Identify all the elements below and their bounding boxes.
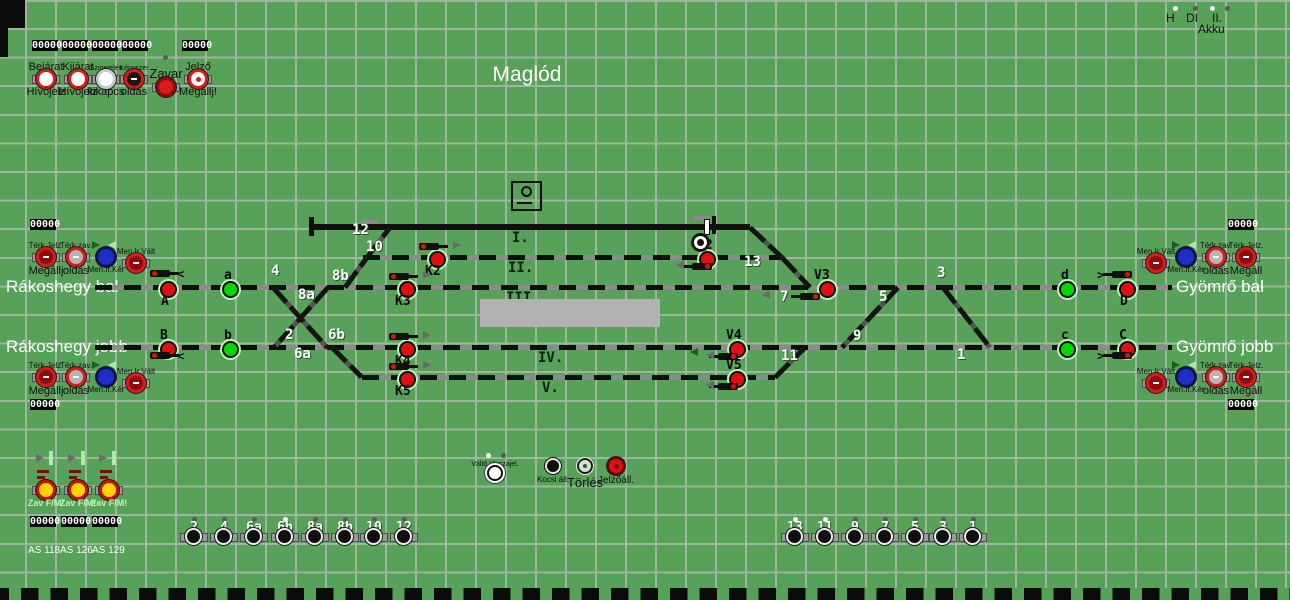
axle-counter-display: 00000 [182,40,208,51]
signal-d[interactable] [1059,281,1076,298]
track-I [312,224,750,230]
jelz-ll--button[interactable] [607,457,625,475]
signal-a[interactable] [222,281,239,298]
axle-counter-display: 00000 [92,516,118,527]
axle-counter-display: 00000 [32,40,58,51]
track-number-label: V. [542,380,559,396]
switch-button-4[interactable] [215,528,232,545]
switch-button-11[interactable] [816,528,833,545]
route-button-label: Jelzőáll. [588,475,644,486]
block-status-bar [49,451,53,465]
switch-button-5[interactable] [906,528,923,545]
switch-button-6a[interactable] [245,528,262,545]
direction-arrow-icon [423,331,431,339]
zav-fm-label: Zav F/M! [89,498,129,508]
block-status-bar [81,451,85,465]
t-rl-s-button[interactable] [577,458,593,474]
signal-label: C [1119,328,1127,343]
axle-counter-display: 00000 [30,399,56,410]
axle-counter-display: 00000 [1228,399,1254,410]
switch-button-13[interactable] [786,528,803,545]
block-fault-bar [37,470,49,473]
switch-number-label: 11 [781,348,798,364]
signal-mast-symbol [389,273,409,280]
signal-mast-symbol [150,270,170,277]
block-direction-arrow-icon [36,454,44,462]
signal-direction-glyph: < [177,267,184,281]
platform [480,299,660,327]
direction-arrow-icon [676,261,684,269]
block-fault-bar [37,476,45,479]
track-switch-leg [780,255,812,288]
old-s-button[interactable] [1206,247,1226,267]
signal-label: K3 [395,294,411,309]
switch-button-8b[interactable] [336,528,353,545]
track-switch-leg [330,345,364,379]
zav-fm-button[interactable] [36,480,56,500]
switch-number-label: 6a [294,346,311,362]
signal-mast-symbol [1112,352,1132,359]
signal-mast-symbol [419,243,439,250]
old-s-button[interactable] [1206,367,1226,387]
switch-button-1[interactable] [964,528,981,545]
switch-number-label: 12 [352,222,369,238]
axle-counter-display: 00000 [61,516,87,527]
station-title: Maglód [457,63,597,87]
track-switch-leg [840,285,900,348]
track-V [362,375,775,380]
block-direction-arrow-icon [99,454,107,462]
track-number-label: II. [508,260,533,276]
block-section-label: AS 126 [60,545,93,556]
signal-V3[interactable] [819,281,836,298]
track-end-marker [712,216,716,234]
kocsi-ll--button[interactable] [545,458,561,474]
signal-label: A [161,294,169,309]
signal-mast-symbol [1112,271,1132,278]
direction-right-arrow-icon [92,241,100,249]
meg-ll-button[interactable] [1236,247,1256,267]
switch-number-label: 3 [937,265,945,281]
old-s-button[interactable] [66,247,86,267]
direction-right-arrow-icon [1172,361,1180,369]
axle-counter-display: 00000 [62,40,88,51]
direction-arrow-icon [423,271,431,279]
switch-number-label: 9 [853,328,861,344]
signal-mast-symbol [389,363,409,370]
station-building-symbol [511,181,542,211]
switch-button-10[interactable] [365,528,382,545]
old-s-button[interactable] [66,367,86,387]
signal-c[interactable] [1059,341,1076,358]
direction-arrow-icon [706,351,714,359]
axle-counter-display: 00000 [92,40,118,51]
switch-number-label: 13 [744,254,761,270]
block-fault-bar [100,470,112,473]
switch-number-label: 7 [780,289,788,305]
track-number-label: IV. [538,350,563,366]
track-end-marker [309,217,314,236]
indicator-lamp [501,453,506,458]
signal-label: c [1061,328,1069,343]
button-bottom-label: Megállj! [174,86,222,98]
men-ir-k-r-button[interactable] [1176,367,1196,387]
switch-number-label: 6b [328,327,345,343]
switch-button-7[interactable] [876,528,893,545]
signal-label: V3 [814,268,830,283]
switch-number-label: 8a [298,287,315,303]
track-switch-leg [941,285,992,348]
switch-button-8a[interactable] [306,528,323,545]
signal-direction-glyph: > [1097,349,1104,363]
station-label-gyomro-bal: Gyömrő bal [1176,277,1264,297]
switch-number-label: 10 [366,239,383,255]
signal-mast-symbol [692,263,712,270]
signal-mast-symbol [150,352,170,359]
direction-right-arrow-icon [92,361,100,369]
signal-direction-glyph: < [177,349,184,363]
direction-arrow-icon [453,241,461,249]
block-direction-arrow-icon [68,454,76,462]
panel-corner-block [0,28,8,57]
v-lt-visszajel--button[interactable] [487,465,503,481]
power-source-label: DI [1186,11,1198,25]
switch-button-6b[interactable] [276,528,293,545]
button-bottom-label: Megáll [1218,385,1274,397]
track-end-marker [704,219,710,235]
switch-button-9[interactable] [846,528,863,545]
direction-arrow-icon [706,381,714,389]
button-bottom-label: oldás [110,86,158,98]
block-section-label: AS 129 [92,545,125,556]
block-status-bar [112,451,116,465]
meg-llj-button[interactable] [36,367,56,387]
power-indicator-lamp [1225,6,1230,11]
signal-label: b [224,328,232,343]
button-bottom-label: Megáll [1218,265,1274,277]
signal-label: d [1061,268,1069,283]
signal-mast-symbol [718,383,738,390]
meg-llj-button[interactable] [36,247,56,267]
switch-button-12[interactable] [395,528,412,545]
switch-number-label: 4 [271,263,279,279]
signal-label: a [224,268,232,283]
block-fault-bar [100,476,108,479]
direction-right-arrow-icon [1172,241,1180,249]
switch-number-label: 8b [332,268,349,284]
track-II [363,255,782,260]
signal-label: V4 [726,328,742,343]
block-section-label: AS 118 [28,545,60,556]
track-number-label: I. [512,230,529,246]
axle-counter-display: 00000 [30,219,56,230]
signal-label: K5 [395,384,411,399]
switch-button-2[interactable] [185,528,202,545]
signal-label: V5 [726,358,742,373]
direction-arrow-icon [423,361,431,369]
direction-arrow-icon [762,291,770,299]
signal-b[interactable] [222,341,239,358]
station-label-gyomro-jobb: Gyömrő jobb [1176,337,1273,357]
switch-number-label: 1 [957,347,965,363]
signal-label: B [160,328,168,343]
power-source-label: H [1166,11,1175,25]
fault-indicator-lamp [163,55,168,60]
panel-corner-block [0,0,25,28]
block-fault-bar [69,476,77,479]
isolation-marker [362,220,378,224]
battery-label: Akku [1198,22,1225,36]
signal-mast-symbol [389,333,409,340]
signal-direction-glyph: > [1097,268,1104,282]
switch-number-label: 5 [879,289,887,305]
switch-button-3[interactable] [934,528,951,545]
zav-fm-button[interactable] [99,480,119,500]
track-III [95,285,1172,290]
direction-arrow-icon [690,348,698,356]
men-ir-v-lt-button[interactable] [126,373,146,393]
panel-bottom-edge [0,588,1290,600]
signal-tolatasjelzo[interactable] [692,234,709,251]
signal-mast-symbol [800,293,820,300]
switch-number-label: 2 [285,327,293,343]
indicator-lamp [486,453,491,458]
men-ir-k-r-button[interactable] [1176,247,1196,267]
track-IV [95,345,1172,350]
axle-counter-display: 00000 [122,40,148,51]
men-ir-v-lt-button[interactable] [126,253,146,273]
axle-counter-display: 00000 [1228,219,1254,230]
zav-fm-button[interactable] [68,480,88,500]
zavar-button[interactable] [156,77,176,97]
meg-ll-button[interactable] [1236,367,1256,387]
interlocking-panel: Maglód Rákoshegy bal Rákoshegy jobb Gyöm… [0,0,1290,600]
signal-label: D [1120,294,1128,309]
block-fault-bar [69,470,81,473]
axle-counter-display: 00000 [30,516,56,527]
